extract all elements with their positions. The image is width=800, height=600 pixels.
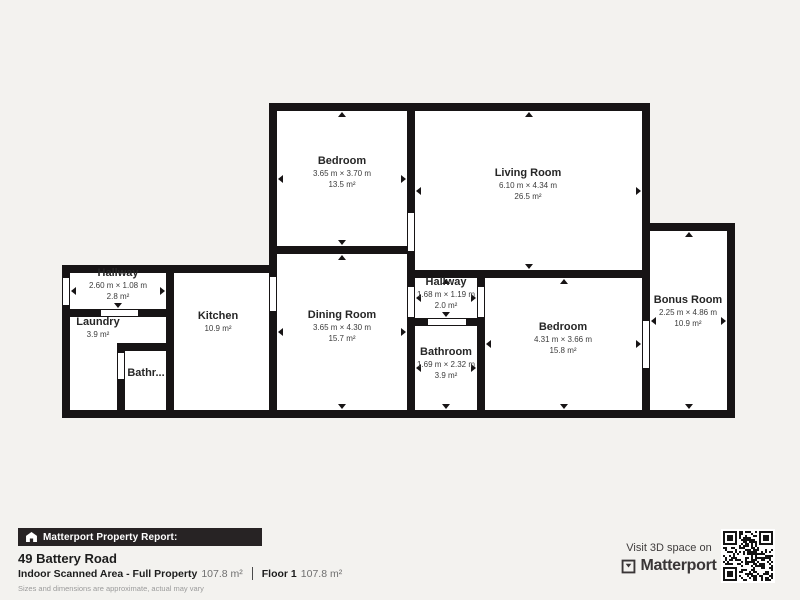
dim-arrow-down bbox=[114, 303, 122, 308]
dim-arrow-up bbox=[560, 279, 568, 284]
dim-arrow-down bbox=[685, 404, 693, 409]
room-label-living: Living Room 6.10 m × 4.34 m 26.5 m² bbox=[495, 167, 562, 202]
door-opening bbox=[478, 286, 484, 318]
dim-arrow-up bbox=[685, 232, 693, 237]
dim-arrow-right bbox=[636, 340, 641, 348]
dim-arrow-up bbox=[525, 112, 533, 117]
dim-arrow-left bbox=[278, 328, 283, 336]
door-opening bbox=[427, 319, 467, 325]
property-address: 49 Battery Road bbox=[18, 551, 117, 566]
floor-plan-report: Bedroom 3.65 m × 3.70 m 13.5 m² Living R… bbox=[0, 0, 800, 600]
door-opening bbox=[408, 212, 414, 252]
room-label-bathroom: Bathroom 1.69 m × 2.32 m 3.9 m² bbox=[417, 346, 475, 381]
visit-3d-block: Visit 3D space on Matterport bbox=[612, 542, 726, 575]
report-title: Matterport Property Report: bbox=[43, 532, 177, 543]
dim-arrow-down bbox=[442, 404, 450, 409]
room-label-laundry: Laundry 3.9 m² bbox=[76, 316, 119, 340]
dim-arrow-down bbox=[442, 312, 450, 317]
room-label-dining: Dining Room 3.65 m × 4.30 m 15.7 m² bbox=[308, 309, 376, 344]
window-opening bbox=[63, 277, 69, 306]
dim-arrow-down bbox=[338, 240, 346, 245]
matterport-wordmark: Matterport bbox=[640, 557, 716, 575]
divider bbox=[252, 567, 253, 580]
room-label-bathroom-small: Bathr... bbox=[127, 367, 164, 380]
floor-label: Floor 1 bbox=[262, 568, 297, 580]
room-label-bonus: Bonus Room 2.25 m × 4.86 m 10.9 m² bbox=[654, 294, 722, 329]
dim-arrow-left bbox=[278, 175, 283, 183]
dim-arrow-up bbox=[338, 255, 346, 260]
scanned-area-value: 107.8 m² bbox=[201, 568, 242, 580]
building-icon bbox=[26, 532, 37, 542]
dim-arrow-right bbox=[636, 187, 641, 195]
dim-arrow-down bbox=[338, 404, 346, 409]
disclaimer-text: Sizes and dimensions are approximate, ac… bbox=[18, 584, 204, 593]
visit-3d-label: Visit 3D space on bbox=[612, 542, 726, 555]
room-label-bedroom-bottom: Bedroom 4.31 m × 3.66 m 15.8 m² bbox=[534, 321, 592, 356]
dim-arrow-left bbox=[416, 187, 421, 195]
door-opening bbox=[643, 320, 649, 369]
dim-arrow-down bbox=[560, 404, 568, 409]
report-title-bar: Matterport Property Report: bbox=[18, 528, 262, 546]
room-label-hallway-mid: Hallway 1.68 m × 1.19 m 2.0 m² bbox=[417, 276, 475, 311]
dim-arrow-left bbox=[71, 287, 76, 295]
scanned-area-label: Indoor Scanned Area - Full Property bbox=[18, 568, 197, 580]
door-opening bbox=[408, 286, 414, 318]
dim-arrow-down bbox=[525, 264, 533, 269]
matterport-icon bbox=[621, 559, 636, 574]
room-label-kitchen: Kitchen 10.9 m² bbox=[198, 310, 238, 334]
door-opening bbox=[118, 352, 124, 380]
qr-code bbox=[721, 529, 775, 583]
dim-arrow-right bbox=[401, 328, 406, 336]
room-label-bedroom-top: Bedroom 3.65 m × 3.70 m 13.5 m² bbox=[313, 155, 371, 190]
room-label-hallway-left: Hallway 2.60 m × 1.08 m 2.8 m² bbox=[89, 267, 147, 302]
door-opening bbox=[270, 276, 276, 312]
dim-arrow-left bbox=[486, 340, 491, 348]
area-summary: Indoor Scanned Area - Full Property 107.… bbox=[18, 567, 342, 580]
dim-arrow-right bbox=[401, 175, 406, 183]
matterport-logo: Matterport bbox=[612, 557, 726, 575]
floor-area-value: 107.8 m² bbox=[301, 568, 342, 580]
dim-arrow-up bbox=[338, 112, 346, 117]
room-kitchen bbox=[166, 265, 277, 418]
dim-arrow-right bbox=[160, 287, 165, 295]
